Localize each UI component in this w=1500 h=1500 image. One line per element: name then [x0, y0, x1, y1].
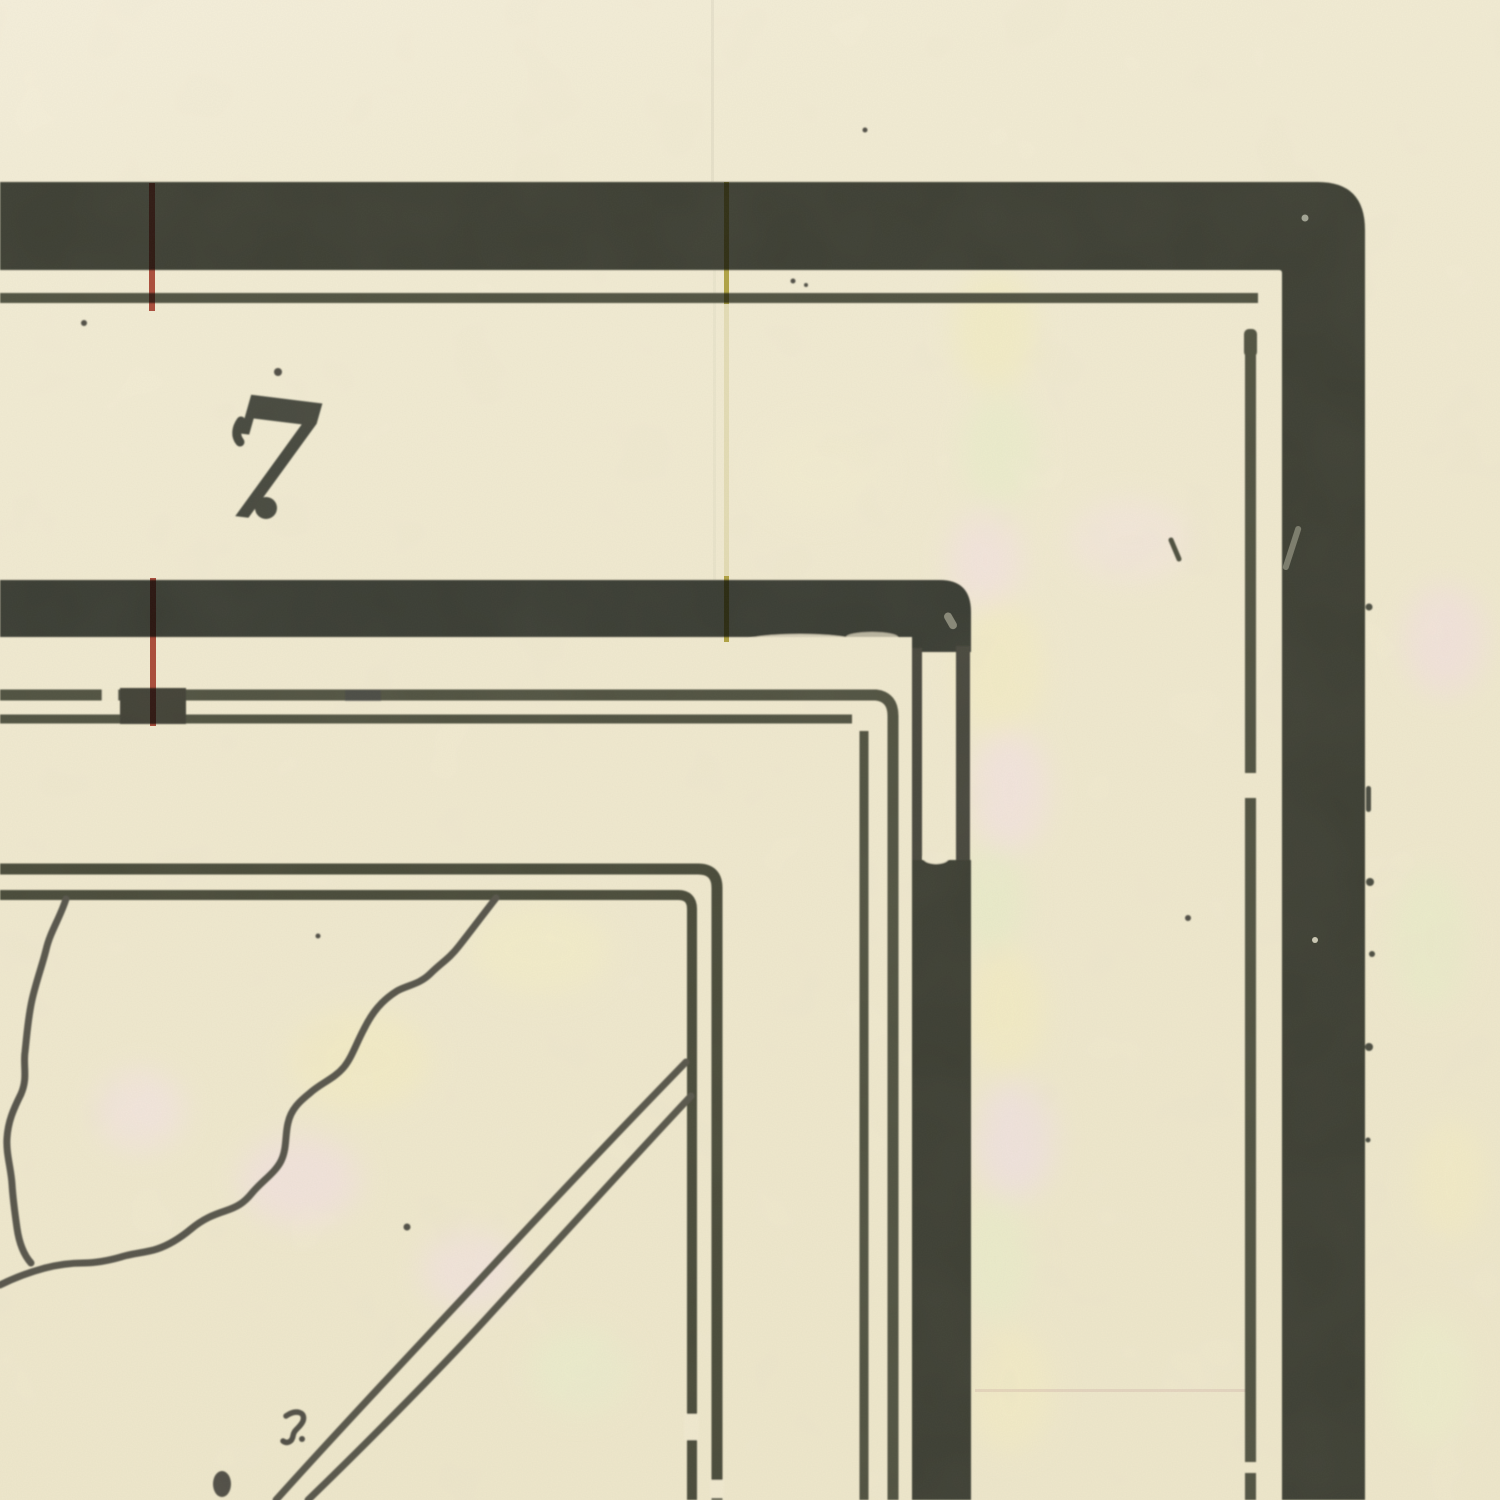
paper-blotch-overlay [0, 0, 1500, 1500]
map-corner-graphic: 7 [0, 0, 1500, 1500]
scanned-map-page: 7 [0, 0, 1500, 1500]
